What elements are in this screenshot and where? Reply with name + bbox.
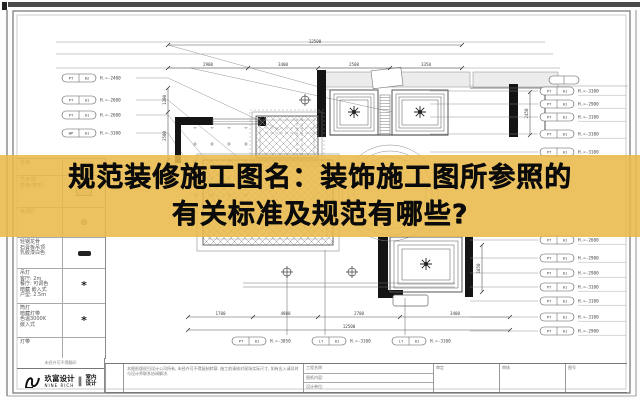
dim-label: PT — [547, 285, 552, 290]
dim-label: 01 — [563, 256, 568, 261]
logo-divider: ‖ — [77, 376, 82, 387]
dim-label: H.=-3100 — [578, 315, 599, 321]
title-block-cell: 审定 — [433, 364, 499, 392]
dim-label: H.=-2400 — [100, 76, 121, 82]
dim-label: 4800 — [280, 311, 291, 316]
dim-label: 1200 — [162, 94, 167, 105]
dim-label: H.=-3050 — [270, 339, 291, 345]
dim-label: 01 — [85, 113, 90, 118]
legend-name: 筒灯 暗藏灯带 色温3000K 嵌入式 — [17, 304, 63, 337]
dim-label: 01 — [563, 89, 568, 94]
company-logo: 玖富设计 NINE RICH ‖ 室内 设计 — [17, 368, 105, 393]
dim-label: 01 — [85, 131, 90, 136]
dim-label: 3400 — [450, 311, 461, 316]
dim-label: 3400 — [278, 62, 289, 67]
dim-label: 01 — [563, 329, 568, 334]
legend-row: 灯带 — [17, 338, 105, 358]
dim-label: 01 — [85, 98, 90, 103]
legend-row: 轻钢龙骨 石膏板吊顶 乳胶漆白色 — [17, 238, 105, 269]
dim-label: PT — [547, 89, 552, 94]
dim-label: H.=-2600 — [100, 98, 121, 104]
dim-label: PT — [69, 113, 74, 118]
legend-footer-note: 未经许可不得翻印 — [17, 358, 105, 368]
legend-row: 筒灯 暗藏灯带 色温3000K 嵌入式 * — [17, 304, 105, 338]
dim-label: 2500 — [349, 62, 360, 67]
dim-label: PT — [239, 339, 244, 344]
title-block-notes: 本图纸版权归设计公司所有, 未经许可不得复制转载. 施工前请核对现场实际尺寸, … — [123, 364, 303, 392]
dim-label: H.=-2900 — [578, 256, 599, 262]
dim-label: 1850 — [476, 263, 481, 274]
dim-label: PT — [547, 238, 552, 243]
dim-label: PT — [547, 132, 552, 137]
title-block-spacer — [105, 364, 123, 392]
dim-label: H.=-2600 — [578, 238, 599, 244]
dim-label: H.=-3100 — [350, 339, 371, 345]
dim-label: 01 — [415, 339, 420, 344]
dim-label: PT — [547, 102, 552, 107]
empty-callout — [549, 76, 579, 84]
legend-name: 吊灯 客厅: 2m 餐厅: 可调色 暗藏 嵌入式 户型: 2.5m — [17, 269, 63, 303]
logo-name-cn: 玖富设计 — [44, 375, 74, 383]
dark-badge-icon — [78, 251, 91, 256]
top-bar — [8, 2, 640, 7]
legend-row: 吊灯 客厅: 2m 餐厅: 可调色 暗藏 嵌入式 户型: 2.5m * — [17, 269, 105, 304]
chandelier-icon: * — [81, 318, 87, 324]
dim-label: 12500 — [343, 324, 356, 329]
dim-label: WP — [69, 131, 74, 136]
dim-label: H.=-3100 — [578, 115, 599, 121]
dim-label: 01 — [255, 339, 260, 344]
dim-label: PT — [547, 115, 552, 120]
dim-label: 3350 — [421, 62, 432, 67]
corner-mark — [2, 2, 7, 10]
headline-line-2: 有关标准及规范有哪些? — [172, 196, 469, 233]
dim-label: H.=-2900 — [578, 271, 599, 277]
dim-label: 01 — [563, 299, 568, 304]
dim-label: PT — [547, 329, 552, 334]
dim-label: PT — [547, 299, 552, 304]
field-label: 图纸内容: — [304, 374, 433, 384]
dim-label: LT — [319, 339, 324, 344]
title-block-fields: 工程名称: 图纸内容: 设计单位: — [303, 364, 433, 392]
dim-label: H.=-3100 — [100, 131, 121, 137]
dim-label: 12500 — [309, 39, 322, 44]
dim-label: H.=-3100 — [430, 339, 451, 345]
screenshot-root: 1250029003400250033501700480027003400125… — [0, 0, 640, 400]
dim-label: PT — [547, 315, 552, 320]
dim-label: 01 — [563, 150, 568, 155]
door-header-tag — [371, 67, 403, 89]
dim-label: 2900 — [203, 62, 214, 67]
legend-name: 灯带 — [17, 338, 63, 358]
dim-label: 2700 — [354, 311, 365, 316]
dim-label: H.=-3100 — [578, 285, 599, 291]
dim-label: H.=-2900 — [578, 329, 599, 335]
headline-banner: 规范装修施工图名：装饰施工图所参照的 有关标准及规范有哪些? — [0, 155, 640, 237]
title-block-cell: 图号 — [565, 364, 627, 392]
dim-label: 01 — [563, 238, 568, 243]
legend-name: 轻钢龙骨 石膏板吊顶 乳胶漆白色 — [17, 238, 63, 268]
logo-swoosh-icon — [24, 374, 41, 389]
dim-label: PT — [69, 76, 74, 81]
title-block-strip: 本图纸版权归设计公司所有, 未经许可不得复制转载. 施工前请核对现场实际尺寸, … — [105, 363, 627, 393]
field-label: 设计单位: — [304, 383, 433, 392]
dim-label: 01 — [563, 271, 568, 276]
dim-label: 2500 — [162, 130, 167, 141]
dim-label: 01 — [563, 315, 568, 320]
logo-name-en: NINE RICH — [44, 383, 74, 388]
title-block-cell: 审核 — [499, 364, 565, 392]
dim-label: 01 — [563, 132, 568, 137]
door-slab — [393, 295, 428, 306]
dim-label: LT — [399, 339, 404, 344]
logo-tag-2: 设计 — [85, 381, 96, 387]
dim-label: H.=-2900 — [578, 102, 599, 108]
dim-label: PT — [547, 256, 552, 261]
field-label: 工程名称: — [304, 364, 433, 374]
chandelier-icon: * — [81, 283, 87, 289]
dim-label: 01 — [563, 115, 568, 120]
dim-label: PT — [547, 271, 552, 276]
dim-label: H.=-3100 — [578, 89, 599, 95]
dim-label: H.=-3100 — [578, 132, 599, 138]
dim-label: 02 — [85, 76, 90, 81]
dim-label: PT — [69, 98, 74, 103]
dim-label: H.=-3100 — [578, 299, 599, 305]
dim-label: 01 — [563, 102, 568, 107]
dim-label: 01 — [563, 285, 568, 290]
dim-label: 1700 — [215, 311, 226, 316]
dim-label: PT — [547, 150, 552, 155]
headline-line-1: 规范装修施工图名：装饰施工图所参照的 — [68, 159, 572, 196]
dim-label: 01 — [335, 339, 340, 344]
dim-label: H.=-2600 — [100, 113, 121, 119]
